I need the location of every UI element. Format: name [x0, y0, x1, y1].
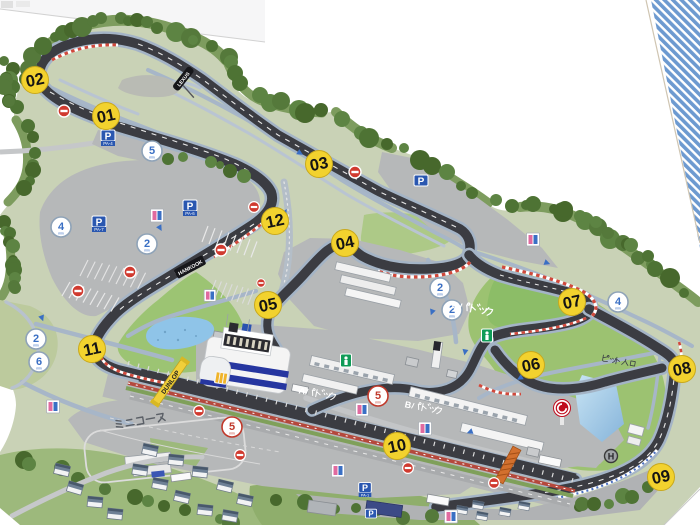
svg-text:H: H	[608, 452, 615, 462]
svg-text:min: min	[36, 367, 42, 371]
svg-text:12: 12	[264, 211, 286, 232]
svg-text:min: min	[58, 232, 64, 236]
svg-text:08: 08	[671, 359, 693, 380]
svg-text:min: min	[437, 293, 443, 297]
svg-text:PA-4: PA-4	[103, 141, 113, 146]
svg-text:min: min	[615, 307, 621, 311]
svg-text:01: 01	[95, 106, 117, 127]
svg-text:PA-6: PA-6	[185, 211, 195, 216]
svg-text:min: min	[144, 249, 150, 253]
svg-text:10: 10	[386, 436, 408, 457]
svg-text:min: min	[33, 344, 39, 348]
svg-text:min: min	[229, 432, 235, 436]
svg-text:P: P	[368, 510, 374, 519]
svg-text:03: 03	[308, 154, 330, 175]
svg-text:09: 09	[650, 467, 672, 488]
svg-text:PA-1: PA-1	[361, 492, 370, 497]
svg-text:min: min	[149, 156, 155, 160]
svg-text:11: 11	[82, 339, 103, 360]
svg-text:07: 07	[561, 292, 583, 313]
svg-text:05: 05	[257, 295, 279, 316]
svg-text:min: min	[449, 315, 455, 319]
svg-text:PA-7: PA-7	[94, 227, 104, 232]
svg-text:min: min	[375, 401, 381, 405]
svg-text:02: 02	[24, 70, 46, 91]
svg-text:P: P	[418, 176, 425, 187]
svg-text:06: 06	[520, 355, 542, 376]
